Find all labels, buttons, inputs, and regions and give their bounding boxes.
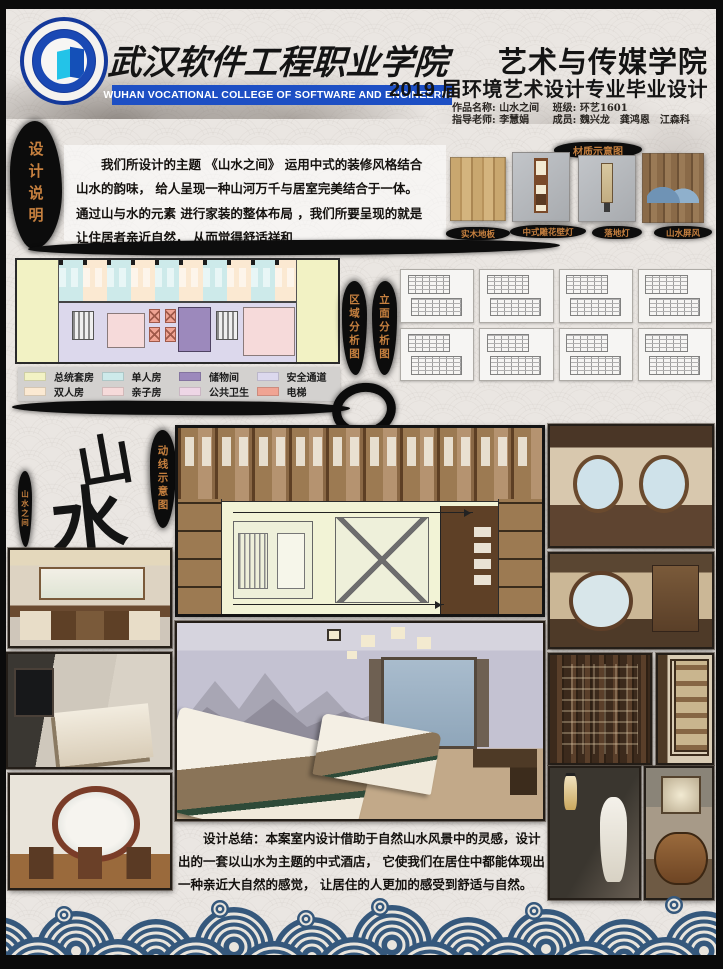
- legend-swatch: [102, 387, 124, 396]
- legend-label: 单人房: [132, 369, 162, 384]
- cplan-arrow-bottom: [233, 604, 444, 605]
- poster: 武汉软件工程职业学院 WUHAN VOCATIONAL COLLEGE OF S…: [6, 9, 716, 955]
- wave-pattern-band: [6, 893, 716, 955]
- plan-presidential-right: [296, 260, 338, 362]
- floor-lamp-shape: [601, 163, 612, 203]
- plan-storage-room: [178, 307, 212, 352]
- legend-item: 总统套房: [24, 369, 102, 384]
- elevation-panel: [559, 328, 633, 382]
- design-summary: 设计总结：本案室内设计借助于自然山水风景中的灵感，设计出的一套以山水为主题的中式…: [178, 827, 550, 896]
- photo-bedroom-tv-wall: [6, 652, 172, 769]
- material-screen-image: [642, 153, 704, 223]
- plan-family-suite: [243, 307, 294, 356]
- plan-legend: 总统套房 单人房 储物间 安全通道 双人房 亲子房 公共卫生 电: [18, 367, 340, 401]
- plan-elevator-4: [165, 327, 177, 341]
- legend-swatch: [24, 387, 46, 396]
- elevation-panel: [479, 328, 553, 382]
- desk-and-chair: [473, 749, 537, 795]
- photo-living-room: [8, 548, 172, 648]
- plan-stair-left: [72, 311, 94, 340]
- elevation-panel: [400, 328, 474, 382]
- legend-label: 安全通道: [287, 369, 327, 384]
- school-seal-core: [41, 38, 87, 84]
- legend-item: 亲子房: [102, 384, 180, 399]
- edition-title: 2019 届环境艺术设计专业毕业设计: [376, 73, 708, 102]
- legend-item: 电梯: [257, 384, 335, 399]
- material-label-wood: 实木地板: [446, 227, 510, 240]
- legend-swatch: [102, 372, 124, 381]
- legend-label: 电梯: [287, 384, 307, 399]
- bookshelf-shelves: [674, 659, 709, 752]
- elevation-analysis-label: 立面分析图: [372, 281, 397, 375]
- elevation-panel: [638, 269, 712, 323]
- design-description-label: 设计说明: [10, 121, 62, 249]
- plan-elevator-1: [149, 309, 161, 323]
- material-floor-lamp-image: [578, 155, 636, 222]
- plan-stair-right: [216, 311, 238, 340]
- legend-swatch: [257, 372, 279, 381]
- material-label-wall-lamp: 中式雕花壁灯: [510, 225, 586, 238]
- calligraphy-seal-strip: 山水之间: [18, 471, 32, 547]
- advisor-name: 李慧娟: [499, 115, 529, 126]
- zone-analysis-label: 区域分析图: [342, 281, 367, 375]
- photo-barrel-bath: [644, 766, 714, 900]
- elevation-panel: [638, 328, 712, 382]
- legend-label: 双人房: [54, 384, 84, 399]
- plan-guest-rooms-strip: [59, 260, 297, 303]
- legend-swatch: [257, 387, 279, 396]
- legend-swatch: [179, 372, 201, 381]
- school-seal-logo: [20, 17, 108, 105]
- legend-label: 亲子房: [132, 384, 162, 399]
- plan-elevator-3: [165, 309, 177, 323]
- elevation-drawings-grid: [400, 269, 712, 381]
- elevation-panel: [559, 269, 633, 323]
- legend-item: 公共卫生: [179, 384, 257, 399]
- circulation-floor-plan: [175, 425, 545, 617]
- cplan-right-wing: [498, 499, 542, 614]
- legend-label: 总统套房: [54, 369, 94, 384]
- design-summary-label: 设计总结：: [203, 831, 266, 846]
- elevation-panel: [479, 269, 553, 323]
- cplan-right-suite: [440, 506, 498, 614]
- plan-presidential-left: [17, 260, 59, 362]
- cplan-left-wing: [178, 499, 222, 614]
- legend-item: 储物间: [179, 369, 257, 384]
- cplan-stair-core: [233, 521, 313, 599]
- legend-swatch: [24, 372, 46, 381]
- photo-bathroom-double-vanity: [548, 424, 714, 548]
- elevation-panel: [400, 269, 474, 323]
- material-label-floor-lamp: 落地灯: [592, 226, 642, 239]
- poster-frame: 武汉软件工程职业学院 WUHAN VOCATIONAL COLLEGE OF S…: [0, 0, 723, 969]
- cplan-arrow-top: [233, 512, 473, 513]
- photo-tea-room-moon-window: [8, 773, 172, 890]
- plan-elevator-2: [149, 327, 161, 341]
- photo-carved-partition: [548, 653, 652, 765]
- photo-main-bedroom: [175, 621, 545, 821]
- logo-cube-glyph-dark: [70, 47, 84, 79]
- material-wall-lamp-image: [512, 152, 570, 222]
- cplan-elevator-core: [335, 517, 430, 603]
- legend-swatch: [179, 387, 201, 396]
- circulation-plan-label: 动线示意图: [150, 430, 176, 528]
- legend-item: 单人房: [102, 369, 180, 384]
- legend-item: 安全通道: [257, 369, 335, 384]
- photo-figure-white-dress: [548, 766, 641, 900]
- members-label: 成员:: [553, 115, 577, 126]
- members-names: 魏兴龙 龚鸿恩 江森科: [580, 115, 690, 126]
- chandelier-lamp: [327, 629, 341, 641]
- cplan-guest-rooms-strip: [178, 428, 542, 502]
- material-label-screen: 山水屏风: [654, 226, 712, 239]
- material-wood-floor-image: [450, 157, 506, 221]
- legend-label: 公共卫生: [209, 384, 249, 399]
- zone-floor-plan: [15, 258, 340, 364]
- meta-line-2: 指导老师: 李慧娟 成员: 魏兴龙 龚鸿恩 江森科: [452, 111, 716, 126]
- design-description-text: 我们所设计的主题 《山水之间》 运用中式的装修风格结合山水的韵味， 给人呈现一种…: [64, 145, 446, 241]
- legend-item: 双人房: [24, 384, 102, 399]
- ink-streak-bottom: [12, 400, 350, 416]
- wall-lamp-shape: [534, 158, 547, 212]
- photo-bathroom-round-mirror: [548, 552, 714, 649]
- advisor-label: 指导老师:: [452, 115, 496, 126]
- plan-public-toilet: [107, 313, 146, 348]
- legend-label: 储物间: [209, 369, 239, 384]
- photo-study-bookshelf: [656, 653, 714, 765]
